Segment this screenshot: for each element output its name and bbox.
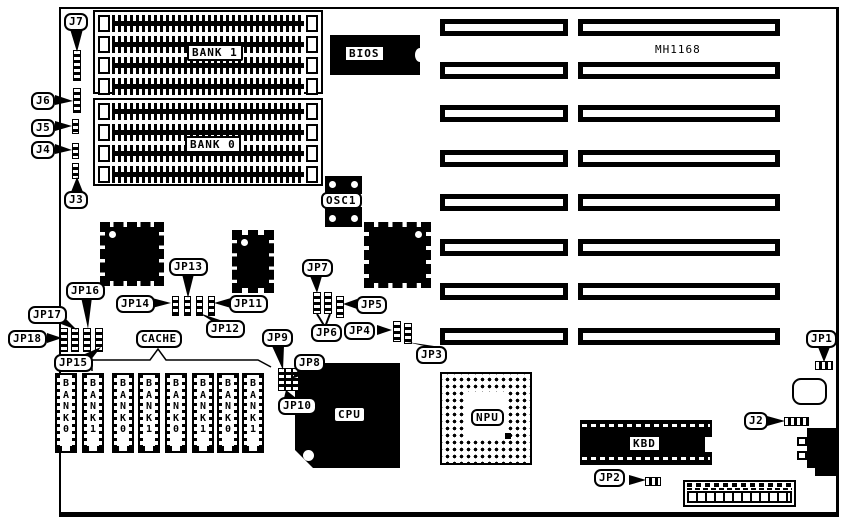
label-jp15: JP15: [54, 354, 93, 372]
label-jp5: JP5: [356, 296, 387, 314]
label-jp6: JP6: [311, 324, 342, 342]
simm-socket: [98, 15, 318, 32]
label-jp17: JP17: [28, 306, 67, 324]
kbd-label: KBD: [628, 435, 661, 452]
isa-slot: [578, 194, 780, 211]
label-jp14: JP14: [116, 295, 155, 313]
jp6-pins: [324, 292, 332, 314]
isa-slot: [440, 62, 568, 79]
isa-slot: [440, 239, 568, 256]
cpu-pin1-dot: [303, 450, 314, 461]
cache-chip: BANK0: [112, 373, 134, 453]
bank0-label: BANK 0: [185, 136, 241, 153]
isa-slot: [440, 150, 568, 167]
cache-chip: BANK1: [82, 373, 104, 453]
jp1-pins: [815, 361, 833, 370]
bios-label: BIOS: [344, 45, 385, 62]
j2-pins: [784, 417, 809, 426]
label-cache: CACHE: [136, 330, 182, 348]
jp18-pins: [60, 328, 68, 352]
qfp-chip: [100, 222, 164, 286]
cache-chip: BANK1: [138, 373, 160, 453]
motherboard-diagram: MH1168 BANK 1 BANK 0 BIOS: [0, 0, 847, 527]
label-jp9: JP9: [262, 329, 293, 347]
cache-chip: BANK1: [242, 373, 264, 453]
label-j7: J7: [64, 13, 88, 31]
label-jp11: JP11: [229, 295, 268, 313]
isa-slot: [578, 150, 780, 167]
socket-npu: NPU: [440, 372, 532, 465]
board-model-text: MH1168: [655, 44, 701, 56]
j7-pins: [73, 50, 81, 81]
label-jp1: JP1: [806, 330, 837, 348]
label-jp8: JP8: [294, 354, 325, 372]
label-jp10: JP10: [278, 397, 317, 415]
jp13-pins: [184, 296, 191, 316]
isa-slot: [440, 283, 568, 300]
isa-slot: [440, 194, 568, 211]
label-j5: J5: [31, 119, 55, 137]
label-jp18: JP18: [8, 330, 47, 348]
isa-slot: [578, 62, 780, 79]
jp4-pins: [393, 321, 401, 342]
label-j2: J2: [744, 412, 768, 430]
cpu-label: CPU: [333, 406, 366, 423]
label-jp16: JP16: [66, 282, 105, 300]
j6-pins: [73, 88, 81, 113]
isa-slot: [578, 105, 780, 122]
battery-outline: [792, 378, 827, 405]
label-jp2: JP2: [594, 469, 625, 487]
qfp-chip: [364, 222, 431, 288]
isa-slot: [578, 239, 780, 256]
j3-pins: [72, 163, 79, 179]
cache-chip: BANK0: [217, 373, 239, 453]
jp17-pins: [71, 328, 79, 352]
j4-pins: [72, 143, 79, 159]
isa-slot: [440, 19, 568, 36]
keyboard-din-connector: [807, 428, 838, 468]
jp3-pins: [404, 323, 412, 344]
osc1-label: OSC1: [321, 192, 362, 209]
isa-slot: [578, 19, 780, 36]
isa-slot: [578, 283, 780, 300]
jp16-pins: [83, 328, 91, 352]
label-jp12: JP12: [206, 320, 245, 338]
oscillator-osc1: OSC1: [325, 176, 362, 227]
jp2-pins: [645, 477, 661, 486]
label-jp3: JP3: [416, 346, 447, 364]
jp5-pins: [336, 296, 344, 318]
npu-pin1-mark: [505, 433, 511, 439]
cache-chip: BANK1: [192, 373, 214, 453]
isa-slot: [440, 105, 568, 122]
label-j4: J4: [31, 141, 55, 159]
simm-bank-1: BANK 1: [93, 10, 323, 94]
cache-chip: BANK0: [55, 373, 77, 453]
jp9-jp8-jp10-pins: [285, 368, 292, 391]
jp12-pins: [196, 296, 203, 316]
label-jp7: JP7: [302, 259, 333, 277]
chip-bios: BIOS: [330, 35, 420, 75]
isa-slot: [440, 328, 568, 345]
simm-socket: [98, 103, 318, 120]
simm-socket: [98, 166, 318, 183]
cache-chip: BANK0: [165, 373, 187, 453]
qfp-chip: [232, 230, 274, 293]
jp15-pins: [95, 328, 103, 352]
jp9-jp8-jp10-pins: [278, 368, 285, 391]
simm-bank-0: BANK 0: [93, 98, 323, 186]
power-connector: [683, 480, 796, 507]
j5-pins: [72, 119, 79, 134]
label-jp13: JP13: [169, 258, 208, 276]
chip-kbd: KBD: [580, 420, 712, 465]
isa-slot: [578, 328, 780, 345]
label-jp4: JP4: [344, 322, 375, 340]
jp14-pins: [172, 296, 179, 316]
npu-label: NPU: [471, 409, 504, 426]
jp7-pins: [313, 292, 321, 314]
bank1-label: BANK 1: [187, 44, 243, 61]
chip-cpu: CPU: [295, 363, 400, 468]
simm-socket: [98, 78, 318, 95]
label-j6: J6: [31, 92, 55, 110]
jp11-pins: [208, 296, 215, 316]
label-j3: J3: [64, 191, 88, 209]
kbd-notch: [705, 437, 712, 452]
